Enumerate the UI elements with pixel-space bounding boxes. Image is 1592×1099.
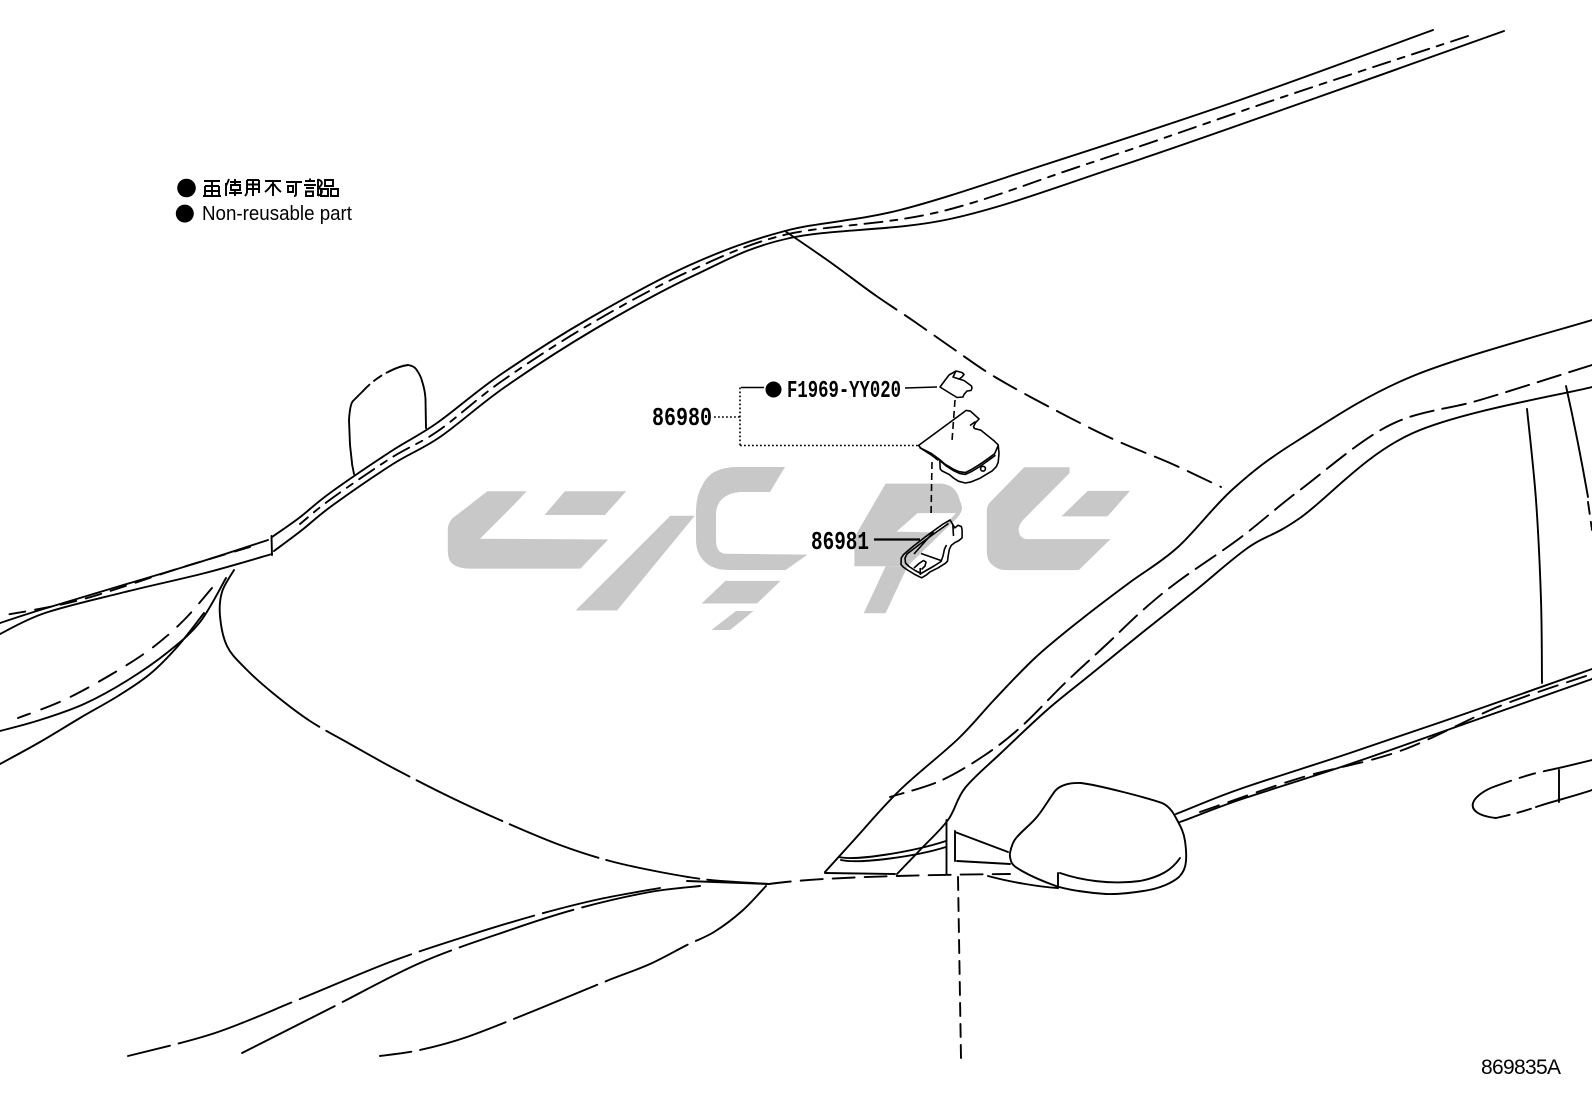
svg-text:F1969-YY020: F1969-YY020 — [787, 378, 901, 405]
svg-text:86980: 86980 — [652, 403, 712, 433]
svg-text:86981: 86981 — [811, 527, 869, 557]
svg-text:869835A: 869835A — [1481, 1056, 1561, 1079]
svg-text:Non-reusable part: Non-reusable part — [202, 203, 352, 225]
